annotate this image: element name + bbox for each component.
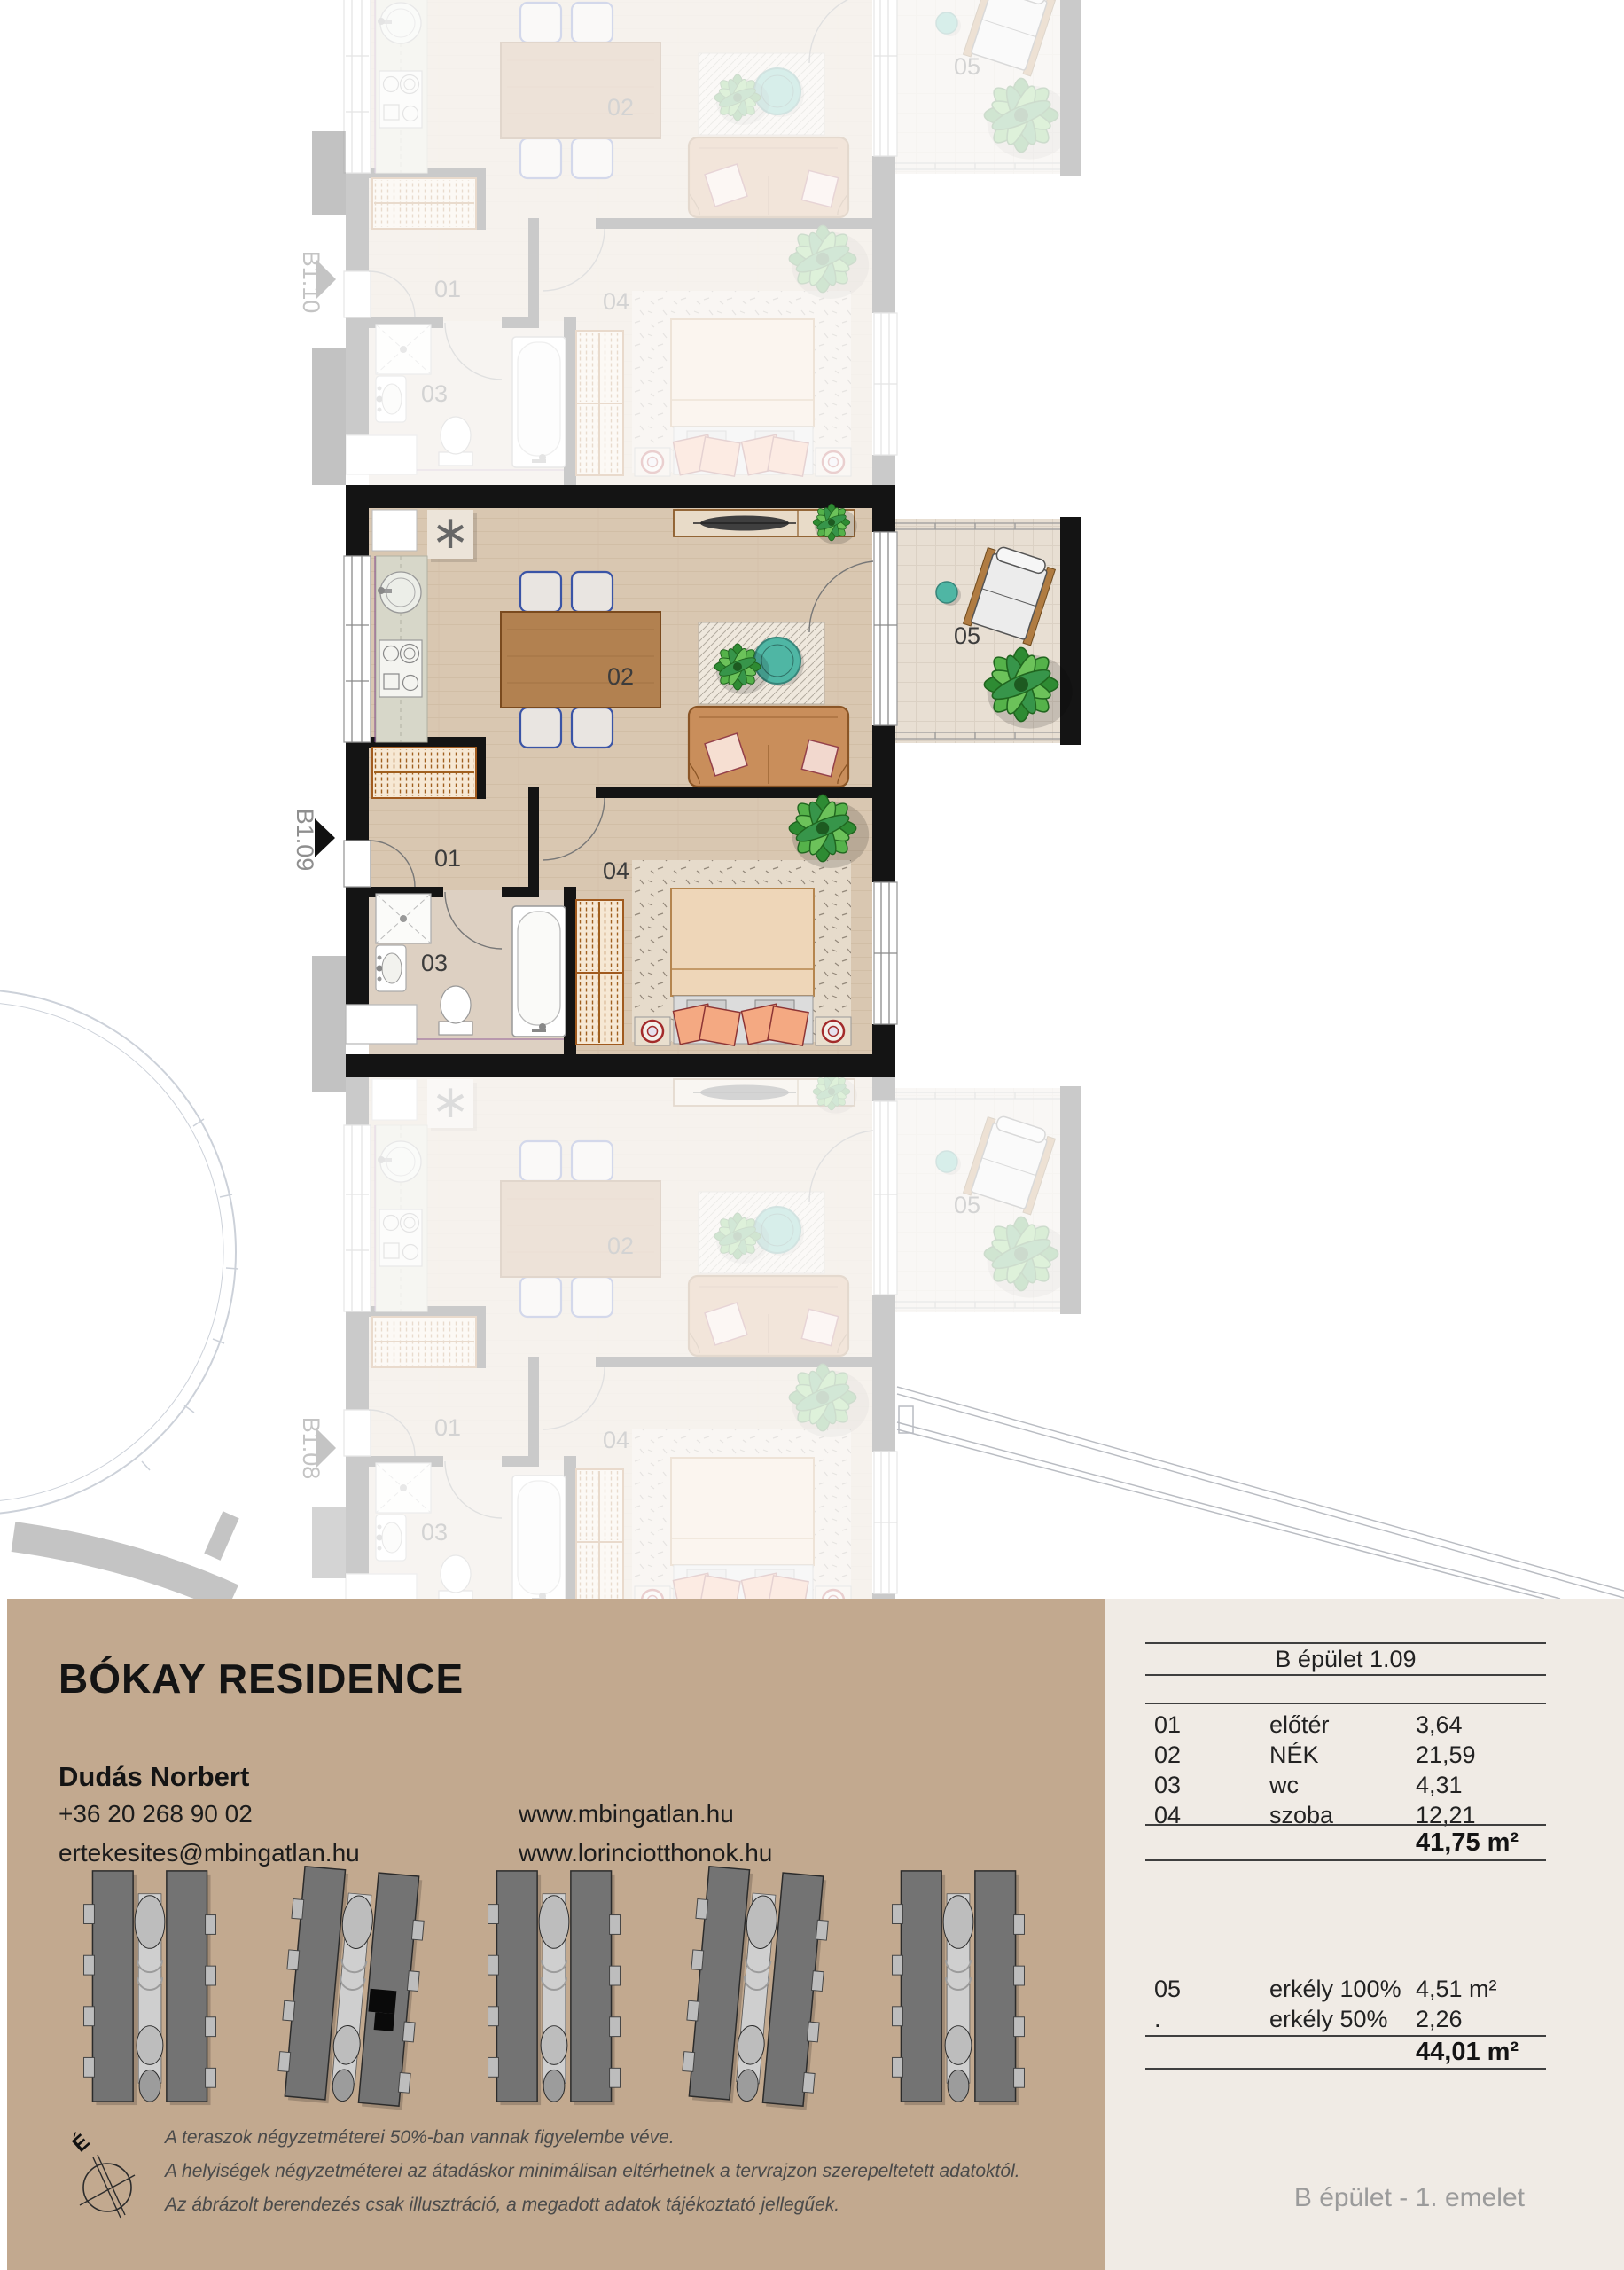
- row-05-area: 4,51 m²: [1416, 1976, 1549, 2006]
- site-road-stub: [204, 1511, 238, 1561]
- compass-icon: É: [44, 2124, 177, 2266]
- table-rule: [1145, 1824, 1546, 1826]
- site-plan-icon-1: [80, 1859, 220, 2114]
- total-all-area: 44,01 m²: [1416, 2038, 1519, 2067]
- site-plan-icon-3: [484, 1859, 624, 2114]
- site-diagonal-lines: [897, 1387, 1624, 1599]
- contact-name: Dudás Norbert: [59, 1761, 249, 1793]
- row-02-area: 21,59: [1416, 1742, 1549, 1772]
- disclaimer-line-2: A helyiségek négyzetméterei az átadáskor…: [165, 2155, 1020, 2188]
- unit-arrow-b108: [316, 1429, 336, 1468]
- total-main-area: 41,75 m²: [1416, 1828, 1519, 1858]
- table-header: B épület 1.09: [1145, 1646, 1546, 1673]
- unit-arrow-b109: [315, 818, 335, 857]
- row-04-area: 12,21: [1416, 1802, 1549, 1832]
- site-road-arc: [13, 1537, 232, 1599]
- unit-b109-plan: [344, 485, 1081, 1077]
- row-05-no: 05: [1154, 1976, 1252, 2006]
- table-rule: [1145, 2035, 1546, 2037]
- row-dot-no: .: [1154, 2006, 1252, 2036]
- unit-b110-plan: [344, 0, 1081, 508]
- site-plan-icon-2-selected: [271, 1853, 433, 2120]
- row-dot-area: 2,26: [1416, 2006, 1549, 2036]
- table-rule: [1145, 2068, 1546, 2070]
- row-04-name: szoba: [1269, 1802, 1411, 1832]
- page-title: BÓKAY RESIDENCE: [59, 1655, 464, 1702]
- row-01-area: 3,64: [1416, 1711, 1549, 1742]
- site-plan-icon-5: [888, 1859, 1028, 2114]
- unit-b108-plan: [344, 1054, 1081, 1599]
- website-mbingatlan: www.mbingatlan.hu: [519, 1800, 734, 1828]
- site-circle: [0, 990, 238, 1515]
- disclaimer-line-1: A teraszok négyzetméterei 50%-ban vannak…: [165, 2121, 1020, 2155]
- table-panel: [1105, 1599, 1624, 2270]
- row-02-no: 02: [1154, 1742, 1252, 1772]
- floor-plan: ∗: [0, 0, 1624, 1599]
- row-05-name: erkély 100%: [1269, 1976, 1411, 2006]
- site-plan-icon-4: [675, 1853, 837, 2120]
- table-rule: [1145, 1642, 1546, 1644]
- row-03-no: 03: [1154, 1772, 1252, 1802]
- floor-caption: B épület - 1. emelet: [1241, 2183, 1525, 2213]
- row-02-name: NÉK: [1269, 1742, 1411, 1772]
- table-rule: [1145, 1702, 1546, 1704]
- unit-label-b109: B1.09: [292, 809, 318, 872]
- disclaimer-line-3: Az ábrázolt berendezés csak illusztráció…: [165, 2188, 1020, 2222]
- unit-arrow-b110: [316, 260, 336, 299]
- table-rule: [1145, 1674, 1546, 1676]
- row-04-no: 04: [1154, 1802, 1252, 1832]
- compass-north-label: É: [67, 2129, 95, 2157]
- row-01-name: előtér: [1269, 1711, 1411, 1742]
- contact-phone: +36 20 268 90 02: [59, 1800, 253, 1828]
- row-03-area: 4,31: [1416, 1772, 1549, 1802]
- row-dot-name: erkély 50%: [1269, 2006, 1411, 2036]
- table-rule: [1145, 1859, 1546, 1861]
- row-01-no: 01: [1154, 1711, 1252, 1742]
- disclaimer-text: A teraszok négyzetméterei 50%-ban vannak…: [165, 2121, 1020, 2222]
- row-03-name: wc: [1269, 1772, 1411, 1802]
